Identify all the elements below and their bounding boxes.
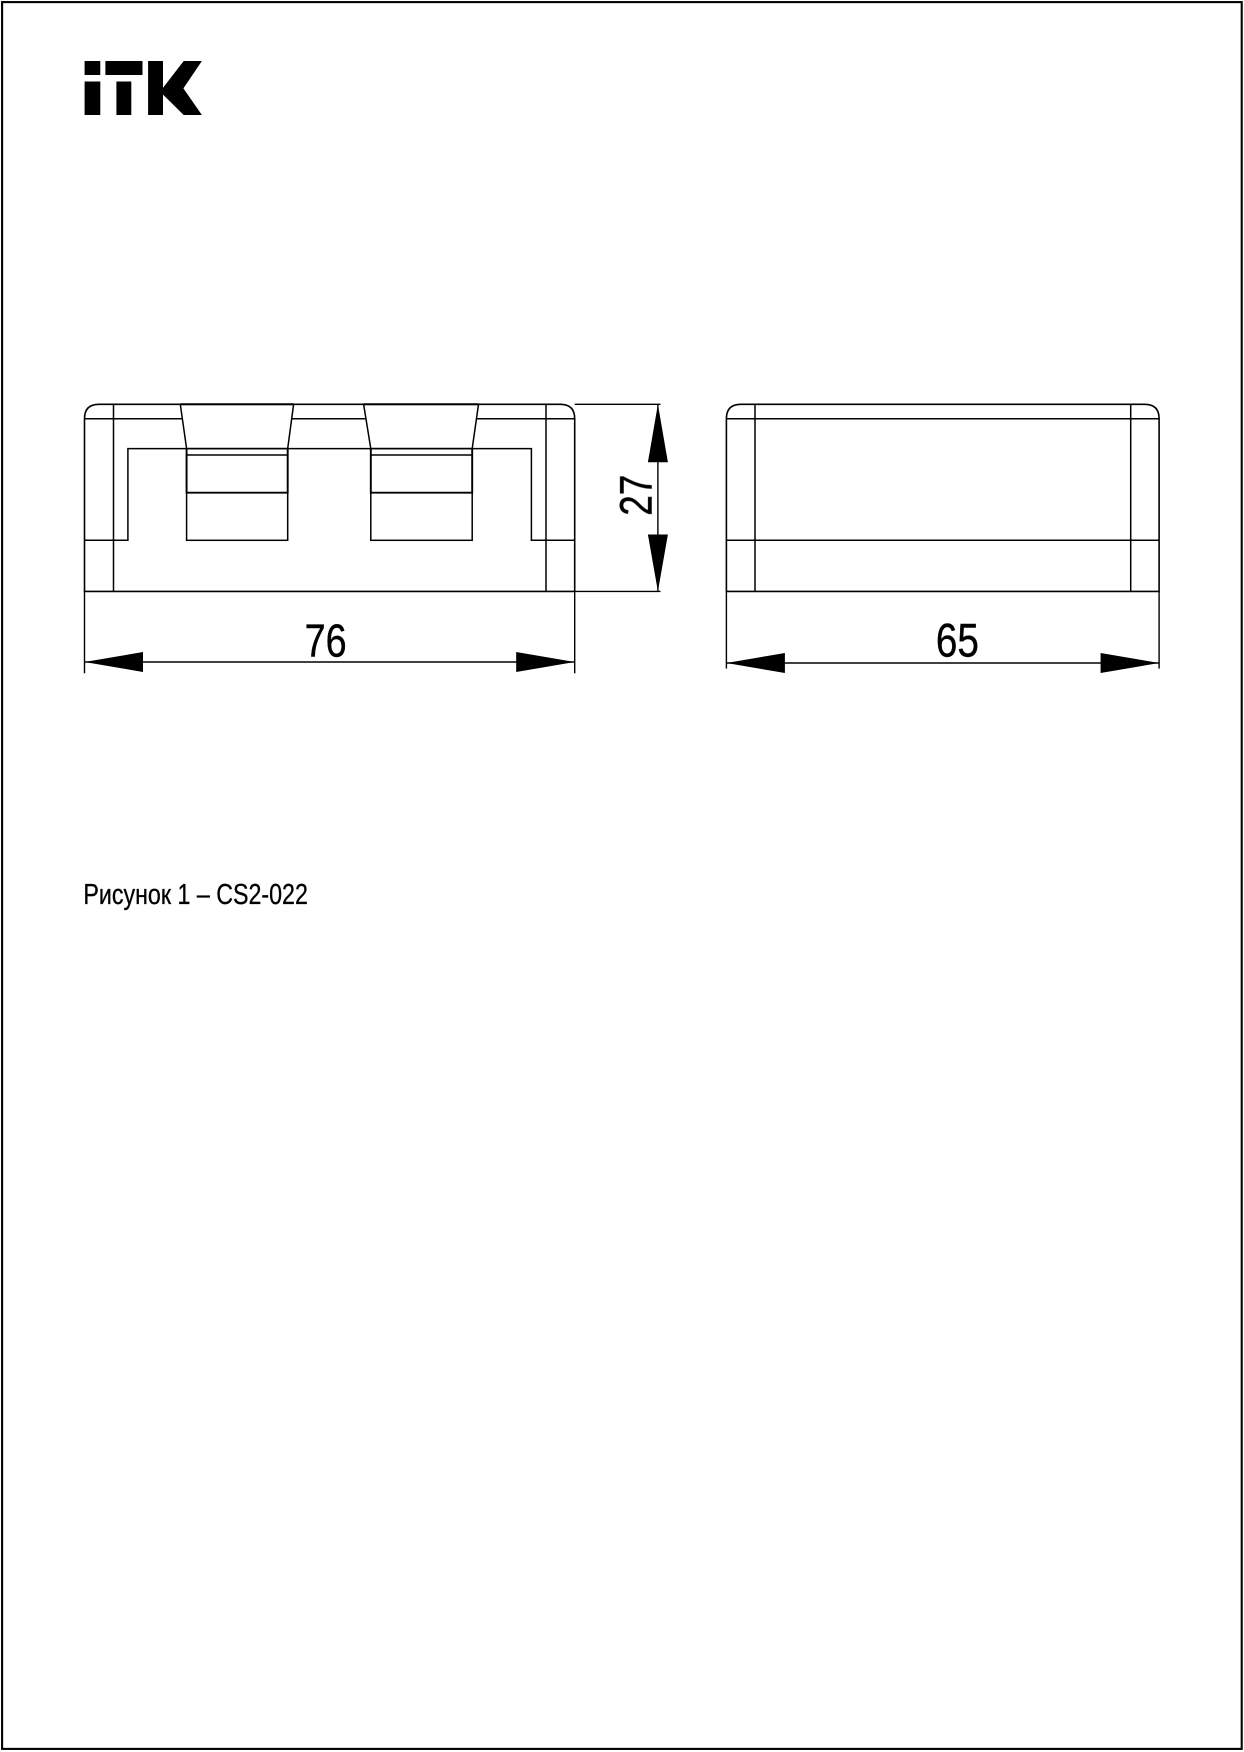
svg-text:65: 65 <box>936 614 979 667</box>
svg-text:27: 27 <box>611 475 662 516</box>
svg-text:76: 76 <box>305 615 347 667</box>
svg-text:Рисунок 1 – CS2-022: Рисунок 1 – CS2-022 <box>83 879 308 911</box>
